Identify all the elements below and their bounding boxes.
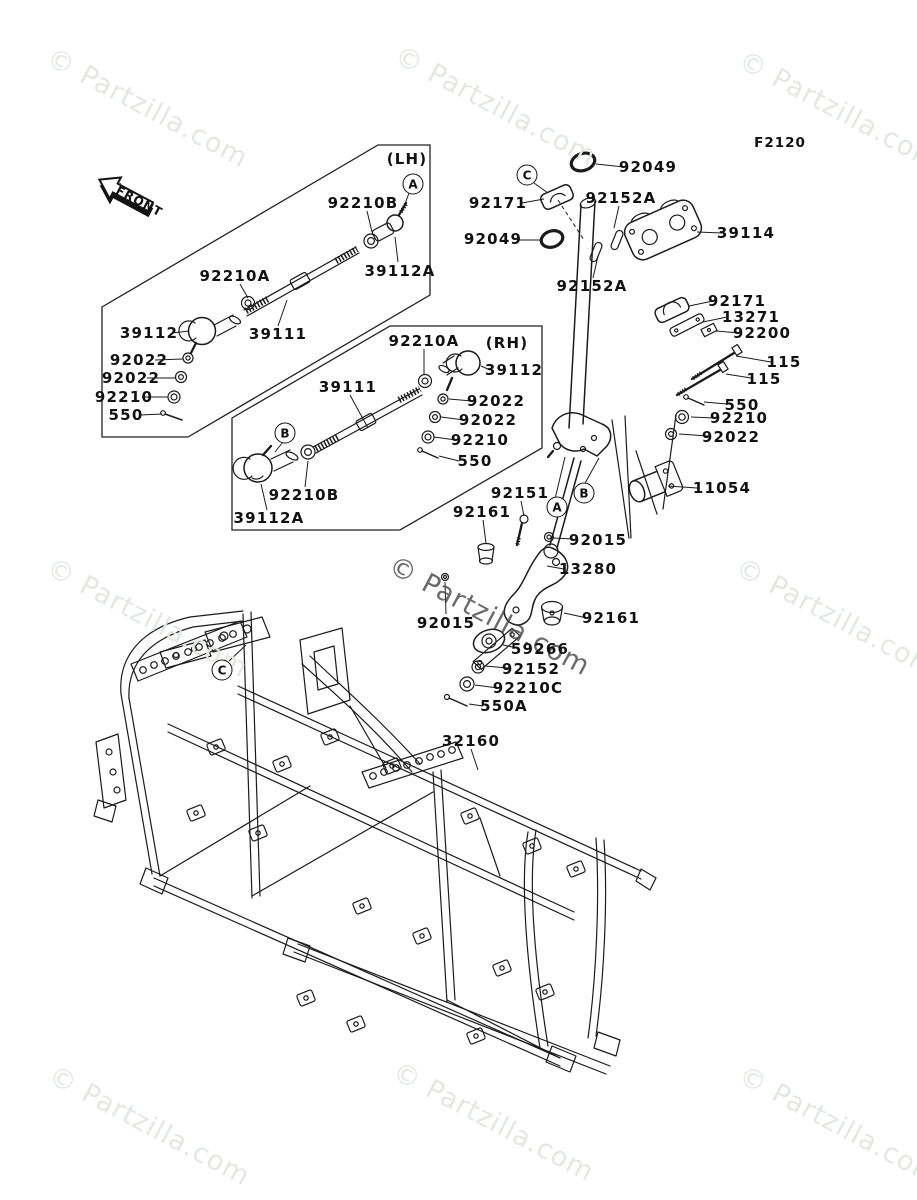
callout-92022-col[interactable]: 92022 bbox=[702, 428, 760, 446]
holder-11054 bbox=[625, 460, 684, 509]
oring-92049-lower bbox=[539, 228, 565, 250]
frame-drawing bbox=[94, 611, 656, 1074]
callout-92210C[interactable]: 92210C bbox=[493, 679, 563, 697]
callout-39112-lh[interactable]: 39112 bbox=[120, 324, 178, 342]
callout-92210B-rh[interactable]: 92210B bbox=[269, 486, 340, 504]
washer-92022-rh-2 bbox=[430, 412, 441, 423]
callout-39112A-rh[interactable]: 39112A bbox=[234, 509, 305, 527]
ref-circle-a-lh: A bbox=[403, 174, 424, 195]
callout-92015-left[interactable]: 92015 bbox=[417, 614, 475, 632]
damper-92161-lower bbox=[542, 602, 563, 626]
bracket-92200 bbox=[701, 323, 717, 336]
callout-92151[interactable]: 92151 bbox=[491, 484, 549, 502]
callout-115-2[interactable]: 115 bbox=[747, 370, 782, 388]
ref-circle-c-frame: C bbox=[212, 660, 233, 681]
callout-39114[interactable]: 39114 bbox=[717, 224, 775, 242]
callout-115-1[interactable]: 115 bbox=[767, 353, 802, 371]
figure-code: F2120 bbox=[754, 135, 806, 151]
bolt-115-1 bbox=[692, 344, 742, 379]
washer-92022-lh bbox=[183, 353, 193, 363]
callout-39111-lh[interactable]: 39111 bbox=[249, 325, 307, 343]
callout-92049-lower[interactable]: 92049 bbox=[464, 230, 522, 248]
ref-circle-b-mid: B bbox=[574, 483, 595, 504]
ref-circle-a-mid: A bbox=[547, 497, 568, 518]
cotter-pin-550A bbox=[445, 695, 450, 700]
callout-92152A-2[interactable]: 92152A bbox=[557, 277, 628, 295]
callout-92171-upper[interactable]: 92171 bbox=[469, 194, 527, 212]
nut-92210C bbox=[460, 677, 474, 691]
bolt-92151 bbox=[520, 515, 528, 523]
main-rail-32160 bbox=[238, 686, 641, 871]
callout-92210-rh[interactable]: 92210 bbox=[451, 431, 509, 449]
callout-92210-col[interactable]: 92210 bbox=[710, 409, 768, 427]
callout-92015-right[interactable]: 92015 bbox=[569, 531, 627, 549]
callout-92210A-rh[interactable]: 92210A bbox=[389, 332, 460, 350]
callout-39111-rh[interactable]: 39111 bbox=[319, 378, 377, 396]
callout-92022-lh-2[interactable]: 92022 bbox=[102, 369, 160, 387]
bolt-92015-bracket bbox=[554, 443, 561, 450]
damper-92161-upper bbox=[478, 544, 494, 565]
callout-92200[interactable]: 92200 bbox=[733, 324, 791, 342]
callout-92049-top[interactable]: 92049 bbox=[619, 158, 677, 176]
callout-92210-lh[interactable]: 92210 bbox=[95, 388, 153, 406]
callout-59266[interactable]: 59266 bbox=[511, 640, 569, 658]
callout-550-lh[interactable]: 550 bbox=[109, 406, 144, 424]
callout-92022-lh-1[interactable]: 92022 bbox=[110, 351, 168, 369]
callout-92022-rh-1[interactable]: 92022 bbox=[467, 392, 525, 410]
nut-92210B-lh bbox=[364, 234, 378, 248]
nut-92210-rh bbox=[422, 431, 434, 443]
column-bottom-bracket bbox=[552, 413, 611, 456]
callout-550A[interactable]: 550A bbox=[480, 697, 528, 715]
callout-92161-lower[interactable]: 92161 bbox=[582, 609, 640, 627]
front-arrow: FRONT bbox=[91, 169, 167, 228]
callout-92152A-1[interactable]: 92152A bbox=[586, 189, 657, 207]
clamp-92171-lower bbox=[653, 296, 690, 324]
callout-92210A-lh[interactable]: 92210A bbox=[200, 267, 271, 285]
callout-550-rh[interactable]: 550 bbox=[458, 452, 493, 470]
ball-joint-39112A-lh bbox=[371, 222, 394, 242]
steering-shaft-tube bbox=[569, 205, 581, 428]
callout-11054[interactable]: 11054 bbox=[693, 479, 751, 497]
u-joint bbox=[544, 544, 558, 558]
washer-92022-lh-2 bbox=[176, 372, 187, 383]
callout-92161-upper[interactable]: 92161 bbox=[453, 503, 511, 521]
bolt-115-2 bbox=[677, 361, 728, 395]
nut-92210-lh bbox=[168, 391, 180, 403]
washer-92022-col bbox=[666, 429, 677, 440]
clamp-92171-upper bbox=[539, 183, 575, 211]
washer-92022-rh bbox=[438, 394, 448, 404]
callout-39112A-lh[interactable]: 39112A bbox=[365, 262, 436, 280]
rh-tie-rod-assembly bbox=[233, 351, 480, 482]
nut-92210-col bbox=[676, 411, 689, 424]
callout-92210B-lh[interactable]: 92210B bbox=[328, 194, 399, 212]
group-tag-lh: (LH) bbox=[387, 150, 428, 168]
callout-32160[interactable]: 32160 bbox=[442, 732, 500, 750]
callout-92022-rh-2[interactable]: 92022 bbox=[459, 411, 517, 429]
group-tag-rh: (RH) bbox=[486, 334, 529, 352]
ref-circle-c-column: C bbox=[517, 165, 538, 186]
ref-circle-b-rh: B bbox=[275, 423, 296, 444]
pin-92152A-1 bbox=[610, 229, 624, 250]
parts-diagram-page: FRONT bbox=[0, 0, 917, 1200]
callout-39112-rh[interactable]: 39112 bbox=[485, 361, 543, 379]
nut-92210A-rh bbox=[419, 375, 432, 388]
callout-92152[interactable]: 92152 bbox=[502, 660, 560, 678]
callout-13280[interactable]: 13280 bbox=[559, 560, 617, 578]
